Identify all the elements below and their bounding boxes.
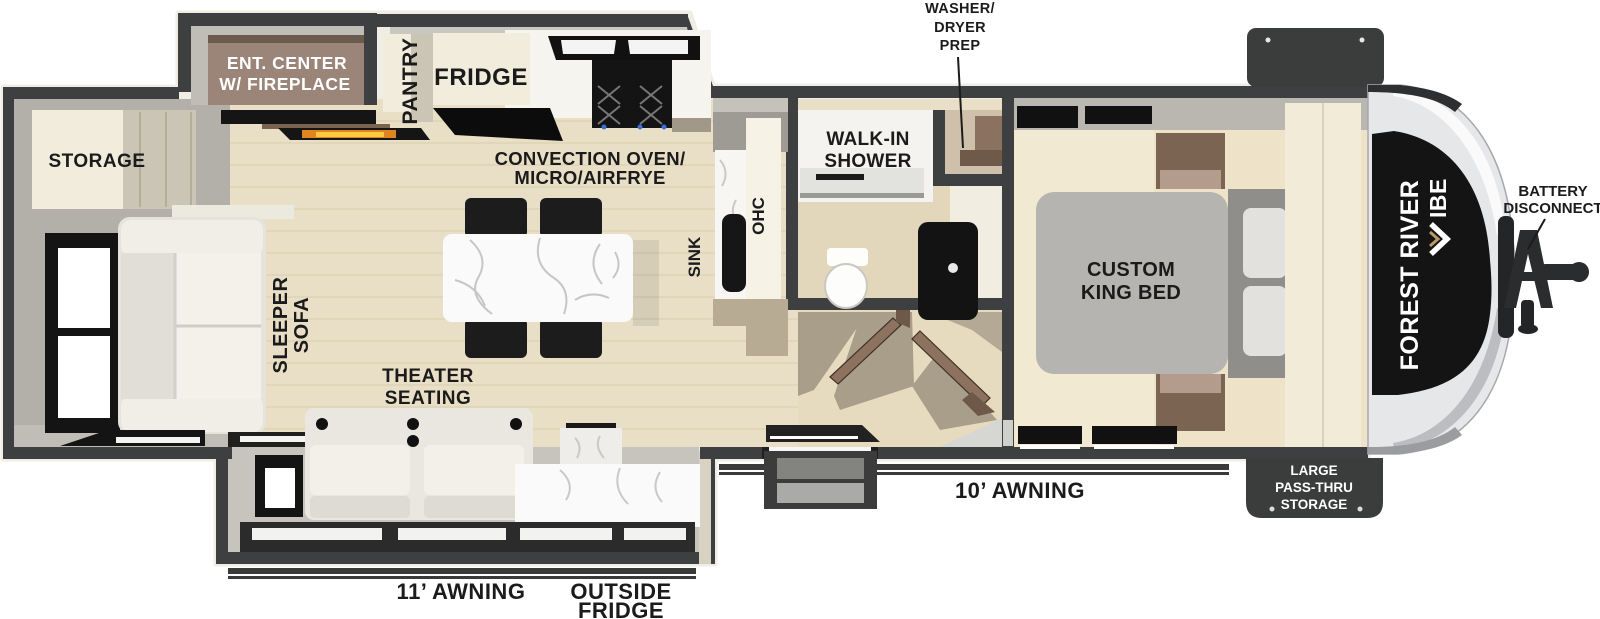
svg-text:ENT. CENTER: ENT. CENTER [227,53,347,73]
svg-text:STORAGE: STORAGE [48,151,145,172]
svg-text:MICRO/AIRFRYE: MICRO/AIRFRYE [514,167,665,188]
svg-text:STORAGE: STORAGE [1281,497,1348,512]
svg-text:SINK: SINK [685,236,704,277]
svg-text:DRYER: DRYER [934,20,986,36]
svg-text:CUSTOM: CUSTOM [1087,259,1175,281]
svg-text:PASS-THRU: PASS-THRU [1275,480,1353,495]
svg-text:SEATING: SEATING [385,388,472,409]
svg-text:CONVECTION OVEN/: CONVECTION OVEN/ [495,148,686,169]
svg-text:FRIDGE: FRIDGE [578,598,664,619]
svg-text:FOREST RIVER: FOREST RIVER [1396,180,1424,371]
svg-text:FRIDGE: FRIDGE [434,64,528,91]
svg-text:OHC: OHC [749,197,768,235]
svg-text:SHOWER: SHOWER [824,151,911,172]
svg-text:10’ AWNING: 10’ AWNING [955,478,1085,503]
svg-text:DISCONNECT: DISCONNECT [1503,200,1600,217]
svg-text:W/ FIREPLACE: W/ FIREPLACE [219,74,350,94]
svg-text:KING BED: KING BED [1081,282,1181,304]
svg-text:BATTERY: BATTERY [1518,183,1587,200]
svg-text:SLEEPER: SLEEPER [270,277,292,374]
svg-text:WASHER/: WASHER/ [925,1,995,17]
svg-text:WALK-IN: WALK-IN [826,129,909,150]
svg-text:SOFA: SOFA [291,297,313,353]
svg-text:THEATER: THEATER [382,366,474,387]
svg-text:11’ AWNING: 11’ AWNING [397,579,526,604]
svg-text:PREP: PREP [940,38,981,54]
svg-text:IBE: IBE [1425,178,1451,218]
svg-text:PANTRY: PANTRY [399,38,422,125]
svg-text:LARGE: LARGE [1290,463,1337,478]
